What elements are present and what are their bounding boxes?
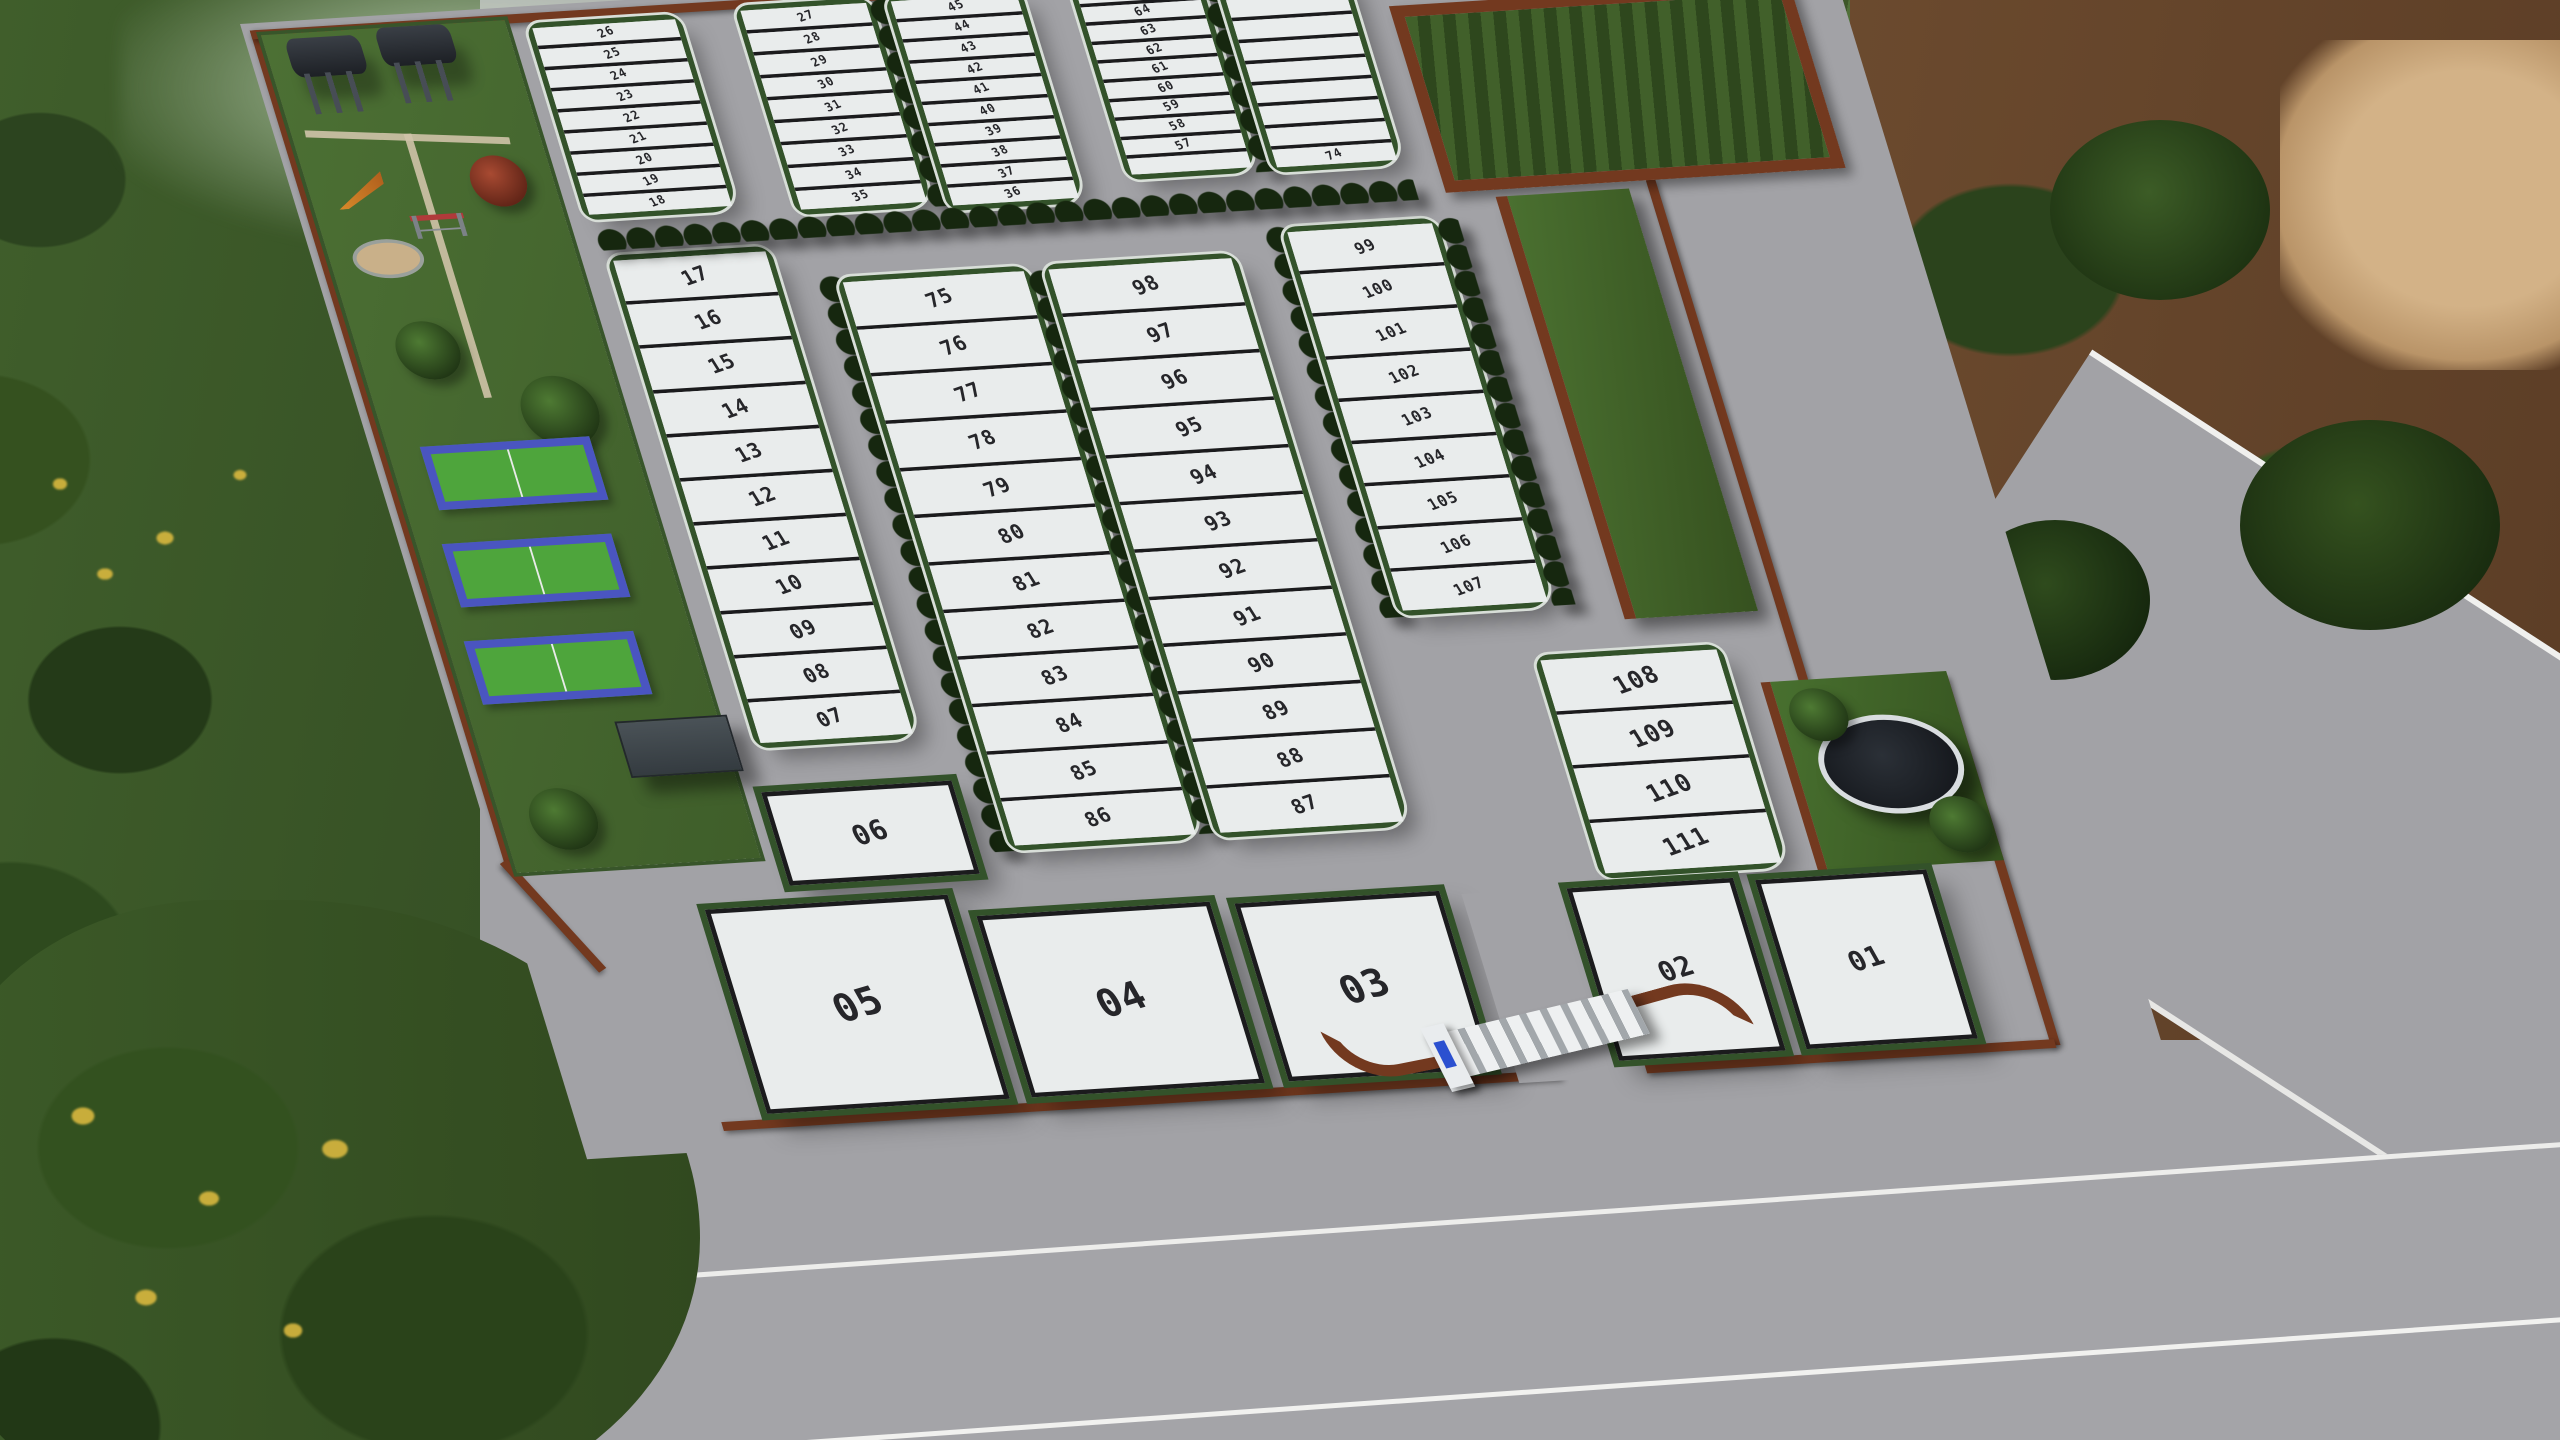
- plot-number: 39: [983, 122, 1006, 140]
- plot-number: 31: [822, 97, 845, 115]
- plot-06: 06: [761, 780, 980, 885]
- plot: 107: [1391, 563, 1548, 611]
- plot-number: 98: [1128, 271, 1165, 300]
- plot-number: 37: [996, 163, 1019, 181]
- plot-number: 29: [808, 52, 831, 70]
- plot-number: 16: [690, 306, 727, 335]
- plot-number: 87: [1287, 791, 1324, 820]
- plot-number: 94: [1186, 460, 1223, 489]
- plot-number: 21: [627, 129, 650, 147]
- plot-number: 08: [798, 659, 835, 688]
- compound-wall-corner: [500, 859, 606, 972]
- sports-court: [464, 631, 653, 705]
- plot-number: 45: [945, 0, 968, 15]
- tank-lawn: [1761, 671, 2004, 872]
- plot-number: 28: [802, 30, 825, 48]
- sports-court: [420, 436, 609, 510]
- flower-patch: [0, 430, 300, 610]
- plot-number: 38: [989, 143, 1012, 161]
- tree-icon: [388, 319, 469, 381]
- plot-number: 85: [1066, 756, 1103, 785]
- plot-number: 03: [1330, 959, 1399, 1014]
- plot-number: 111: [1657, 823, 1715, 863]
- plot-number: 79: [979, 473, 1016, 502]
- plot-number: 97: [1142, 318, 1179, 347]
- plot-number: 19: [640, 172, 663, 190]
- plot-number: 15: [704, 350, 741, 379]
- plot-number: 27: [795, 7, 818, 25]
- plot-number: 78: [965, 426, 1002, 455]
- plot-number: 17: [677, 262, 714, 291]
- plot-number: 12: [744, 483, 781, 512]
- plot-number: 06: [846, 813, 896, 852]
- plot-number: 64: [1132, 2, 1155, 20]
- plot-number: 32: [829, 120, 852, 138]
- plot-number: 91: [1229, 602, 1266, 631]
- plot-number: 80: [994, 520, 1031, 549]
- plot-number: 33: [836, 142, 859, 160]
- plot-number: 05: [823, 977, 892, 1032]
- plot-number: 82: [1022, 615, 1059, 644]
- plot-number: 14: [717, 394, 754, 423]
- plot-number: 41: [970, 80, 993, 98]
- plot-number: 65: [1126, 0, 1149, 1]
- plot-number: 93: [1200, 507, 1237, 536]
- plot-number: 76: [936, 331, 973, 360]
- plot-04: 04: [976, 902, 1265, 1098]
- tree-cluster: [2240, 420, 2500, 630]
- plot-number: 01: [1842, 940, 1892, 979]
- plot-number: 84: [1051, 709, 1088, 738]
- plot-number: 43: [958, 39, 981, 57]
- red-tree-icon: [463, 154, 534, 208]
- water-tank-icon: [283, 35, 369, 78]
- water-tank-icon: [373, 24, 459, 67]
- plot-number: 99: [1351, 236, 1380, 259]
- plot-number: 81: [1008, 567, 1045, 596]
- plot-block-west-upper: 262524232221201918: [532, 19, 732, 214]
- plot-number: 63: [1137, 21, 1160, 39]
- plot-number: 90: [1243, 649, 1280, 678]
- farm-parcel: [1389, 0, 1846, 193]
- plot-number: 23: [614, 87, 637, 105]
- plot-number: 104: [1411, 446, 1450, 473]
- plot-number: 92: [1215, 554, 1252, 583]
- plot-number: 101: [1372, 319, 1411, 346]
- plot-number: 60: [1155, 78, 1178, 96]
- plot-number: 89: [1258, 696, 1295, 725]
- shed: [614, 715, 744, 778]
- tree-cluster: [2050, 120, 2270, 300]
- plot-number: 107: [1450, 573, 1489, 600]
- plot-number: 25: [601, 45, 624, 63]
- plot-01: 01: [1755, 869, 1978, 1049]
- sand-mound: [2280, 40, 2560, 370]
- sandpit-icon: [347, 237, 429, 280]
- plot-number: 100: [1359, 276, 1398, 303]
- plot-number: 110: [1640, 768, 1698, 808]
- plot-number: 74: [1323, 146, 1346, 164]
- plot-number: 83: [1037, 662, 1074, 691]
- plot-number: 59: [1161, 97, 1184, 115]
- plot-number: 102: [1385, 361, 1424, 388]
- plot-number: 30: [815, 75, 838, 93]
- plot-number: 11: [758, 527, 795, 556]
- plot-number: 77: [950, 378, 987, 407]
- plot-number: 109: [1624, 714, 1682, 754]
- plot-number: 07: [812, 703, 849, 732]
- flower-patch: [20, 1050, 440, 1380]
- plot-number: 88: [1272, 743, 1309, 772]
- plot-number: 57: [1172, 135, 1195, 153]
- plot-number: 10: [771, 571, 808, 600]
- plot-number: 20: [634, 150, 657, 168]
- plot: 111: [1590, 812, 1782, 874]
- plot-number: 44: [951, 18, 974, 36]
- plot-number: 09: [785, 615, 822, 644]
- plot-number: 42: [964, 60, 987, 78]
- plot-number: 106: [1437, 531, 1476, 558]
- plot-number: 36: [1002, 184, 1025, 202]
- sports-court: [442, 534, 631, 608]
- plot-number: 13: [731, 438, 768, 467]
- plot-number: 40: [977, 101, 1000, 119]
- plot-number: 75: [921, 284, 958, 313]
- aerial-site-render: 262524232221201918 272829303132333435 45…: [0, 0, 2560, 1440]
- plot-number: 62: [1143, 40, 1166, 58]
- slide-icon: [329, 171, 391, 209]
- plot-number: 103: [1398, 404, 1437, 431]
- plot-number: 04: [1086, 972, 1155, 1027]
- plot-block-east: 108109110111: [1540, 649, 1781, 873]
- plot-number: 18: [647, 193, 670, 211]
- plot-number: 26: [595, 24, 618, 42]
- plot-number: 61: [1149, 59, 1172, 77]
- plot-05: 05: [705, 895, 1010, 1114]
- plot-number: 105: [1424, 488, 1463, 515]
- plot-number: 34: [843, 165, 866, 183]
- tree-icon: [521, 786, 606, 852]
- plot: 07: [748, 693, 913, 743]
- plot-number: 35: [850, 187, 873, 205]
- tree-icon: [1922, 794, 2000, 854]
- plot-number: 95: [1171, 413, 1208, 442]
- plot-number: 86: [1080, 803, 1117, 832]
- gate-pergola: [1444, 989, 1650, 1077]
- plot-number: 108: [1607, 660, 1665, 700]
- plot-number: 24: [608, 66, 631, 84]
- plot-number: 96: [1157, 366, 1194, 395]
- plot-number: 22: [621, 108, 644, 126]
- plot-number: 58: [1167, 116, 1190, 134]
